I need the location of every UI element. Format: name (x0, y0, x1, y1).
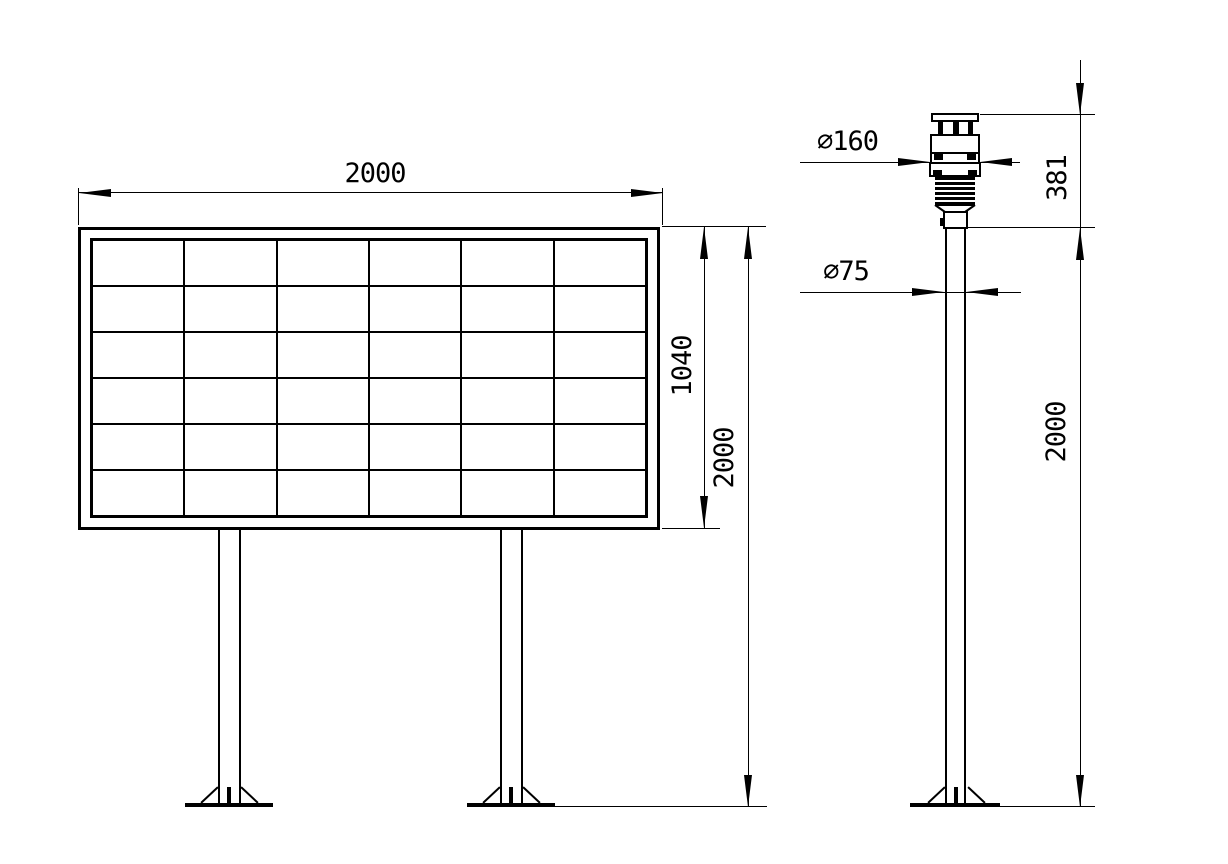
dimension-arrow (744, 227, 752, 259)
panel-cell (369, 240, 461, 286)
dimension-line (704, 227, 705, 528)
panel-cell (277, 378, 369, 424)
panel-grid (90, 238, 648, 518)
dimension-line (79, 192, 663, 193)
left-leg-stub (227, 787, 231, 803)
dimension-arrow (700, 227, 708, 259)
gusset-brace (522, 786, 540, 803)
panel-cell (461, 286, 553, 332)
left-base-plate (185, 803, 273, 807)
panel-cell (92, 470, 184, 516)
panel-cell (92, 424, 184, 470)
panel-cell (184, 332, 276, 378)
panel-cell (554, 424, 646, 470)
panel-cell (92, 332, 184, 378)
dimension-arrow (980, 158, 1012, 166)
dimension-line (1080, 60, 1081, 807)
ground-line (555, 806, 767, 807)
pole (945, 228, 966, 803)
panel-cell (92, 286, 184, 332)
board-width-label: 2000 (300, 160, 450, 188)
dimension-arrow (966, 288, 998, 296)
dimension-arrow (744, 775, 752, 807)
panel-cell (461, 378, 553, 424)
dimension-arrow (1076, 228, 1084, 260)
dimension-arrow (79, 189, 111, 197)
panel-cell (461, 240, 553, 286)
gusset-brace (200, 786, 218, 803)
panel-cell (554, 332, 646, 378)
panel-cell (461, 424, 553, 470)
dimension-line (748, 227, 749, 807)
panel-cell (184, 470, 276, 516)
pole-base-plate (910, 803, 1000, 807)
panel-cell (184, 240, 276, 286)
panel-cell (277, 470, 369, 516)
left-leg (218, 530, 241, 803)
panel-cell (369, 424, 461, 470)
weather-sensor-icon (905, 108, 995, 233)
panel-cell (92, 240, 184, 286)
overall-height-label: 2000 (711, 423, 739, 493)
panel-cell (184, 378, 276, 424)
panel-cell (369, 470, 461, 516)
panel-cell (369, 332, 461, 378)
panel-cell (369, 286, 461, 332)
dimension-arrow (700, 496, 708, 528)
extension-line (662, 528, 720, 529)
dimension-arrow (1076, 83, 1084, 115)
pole-diameter-label: ∅75 (802, 258, 890, 286)
panel-cell (277, 332, 369, 378)
panel-cell (554, 378, 646, 424)
panel-height-label: 1040 (669, 331, 697, 401)
right-leg-stub (509, 787, 513, 803)
dimension-arrow (898, 158, 930, 166)
dimension-arrow (912, 288, 944, 296)
pole-stub (954, 787, 958, 803)
right-leg (500, 530, 523, 803)
panel-cell (554, 286, 646, 332)
sensor-height-label: 381 (1044, 153, 1072, 203)
panel-cell (92, 378, 184, 424)
panel-cell (184, 424, 276, 470)
technical-drawing-canvas: 2000 1040 2000 (0, 0, 1228, 864)
panel-cell (277, 240, 369, 286)
gusset-brace (967, 786, 985, 803)
panel-cell (184, 286, 276, 332)
panel-cell (554, 240, 646, 286)
panel-cell (461, 332, 553, 378)
panel-cell (277, 424, 369, 470)
dimension-arrow (1076, 775, 1084, 807)
gusset-brace (240, 786, 258, 803)
right-base-plate (467, 803, 555, 807)
sensor-diameter-label: ∅160 (800, 128, 895, 156)
gusset-brace (482, 786, 500, 803)
pole-height-label: 2000 (1043, 397, 1071, 467)
dimension-arrow (631, 189, 663, 197)
gusset-brace (927, 786, 945, 803)
panel-cell (554, 470, 646, 516)
panel-cell (369, 378, 461, 424)
panel-cell (277, 286, 369, 332)
panel-cell (461, 470, 553, 516)
